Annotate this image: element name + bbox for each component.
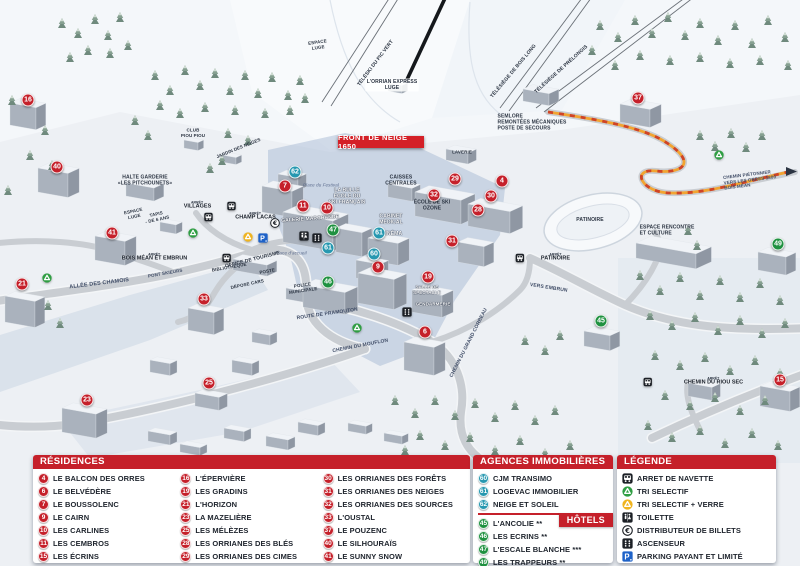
marker-badge: 23 — [180, 512, 191, 523]
legend-item-label: LE POUZENC — [338, 526, 387, 535]
map-marker-7: 7 — [279, 180, 292, 193]
marker-badge: 33 — [323, 512, 334, 523]
residences-column-1: 4 LE BALCON DES ORRES 6 LE BELVÉDÈRE 7 L… — [38, 472, 180, 563]
marker-badge: 6 — [38, 486, 49, 497]
legend-item-label: LES CARLINES — [53, 526, 109, 535]
legend-item-label: LOGEVAC IMMOBILIER — [493, 487, 578, 496]
marker-badge: 62 — [478, 499, 489, 510]
marker-badge: 49 — [478, 557, 489, 566]
legend-item-label: L'ESCALE BLANCHE *** — [493, 545, 581, 554]
bus-icon — [622, 473, 633, 484]
legende-panel-title: LÉGENDE — [617, 455, 776, 469]
legend-item-label: PARKING PAYANT ET LIMITÉ — [637, 552, 743, 561]
map-marker-16: 16 — [22, 94, 35, 107]
map-marker-60: 60 — [368, 248, 381, 261]
map-marker-11: 11 — [297, 200, 310, 213]
legend-item-label: LE SUNNY SNOW — [338, 552, 403, 561]
map-marker-62: 62 — [289, 166, 302, 179]
legende-panel: LÉGENDE ARRET DE NAVETTE TRI SELECTIF TR… — [617, 455, 776, 563]
elevator-icon — [312, 233, 322, 243]
recycle-green-icon — [352, 323, 362, 333]
legend-item: 7 LE BOUSSOLENC — [38, 498, 180, 511]
legend-item: 62 NEIGE ET SOLEIL — [478, 498, 608, 511]
legend-item-label: LE BALCON DES ORRES — [53, 474, 145, 483]
legend-item: € DISTRIBUTEUR DE BILLETS — [622, 524, 771, 537]
legend-item-label: LES ORRIANES DES CIMES — [195, 552, 297, 561]
residences-column-2: 16 L'ÉPERVIÈRE 19 LES GRADINS 21 L'HORIZ… — [180, 472, 322, 563]
legend-item: 31 LES ORRIANES DES NEIGES — [323, 485, 465, 498]
legend-item-label: LES ORRIANES DES NEIGES — [338, 487, 445, 496]
marker-badge: 16 — [180, 473, 191, 484]
legend-item-label: LES CEMBROS — [53, 539, 109, 548]
legend-item: 21 L'HORIZON — [180, 498, 322, 511]
marker-badge: 61 — [478, 486, 489, 497]
marker-badge: 21 — [180, 499, 191, 510]
map-marker-21: 21 — [16, 278, 29, 291]
bus-stop-label: CHAMP LACAS — [235, 215, 276, 221]
legend-item: 15 LES ÉCRINS — [38, 550, 180, 563]
marker-badge: 47 — [478, 544, 489, 555]
hotels-section-title: HÔTELS — [559, 513, 613, 527]
marker-badge: 31 — [323, 486, 334, 497]
map-marker-6: 6 — [419, 326, 432, 339]
legend-item-label: LA MAZELIÈRE — [195, 513, 251, 522]
recycle-green-icon — [188, 228, 198, 238]
legende-list: ARRET DE NAVETTE TRI SELECTIF TRI SELECT… — [617, 469, 776, 563]
legend-item-label: LES GRADINS — [195, 487, 247, 496]
elevator-icon — [622, 538, 633, 549]
marker-badge: 28 — [180, 538, 191, 549]
legend-item-label: TRI SELECTIF — [637, 487, 689, 496]
legend-item-label: LE CAIRN — [53, 513, 89, 522]
recycle-green-icon — [714, 150, 724, 160]
map-marker-15: 15 — [774, 374, 787, 387]
bus-stop-patinoire: ARRÊT PATINOIRE — [515, 250, 584, 267]
map-marker-41: 41 — [106, 227, 119, 240]
residences-panel: RÉSIDENCES 4 LE BALCON DES ORRES 6 LE BE… — [33, 455, 470, 563]
legend-item-label: L'ANCOLIE ** — [493, 519, 542, 528]
legend-item-label: LES ORRIANES DES SOURCES — [338, 500, 453, 509]
marker-badge: 60 — [478, 473, 489, 484]
bus-stop-label: PATINOIRE — [541, 256, 570, 262]
recycle-green-icon — [622, 486, 633, 497]
legend-item: 41 LE SUNNY SNOW — [323, 550, 465, 563]
bus-icon — [643, 378, 652, 387]
legend-item-label: ASCENSEUR — [637, 539, 685, 548]
marker-badge: 7 — [38, 499, 49, 510]
marker-badge: 25 — [180, 525, 191, 536]
parking-icon: P — [622, 551, 633, 562]
marker-badge: 40 — [323, 538, 334, 549]
legend-item-label: LES ORRIANES DES FORÊTS — [338, 474, 447, 483]
legend-item: ARRET DE NAVETTE — [622, 472, 771, 485]
legend-item: 61 LOGEVAC IMMOBILIER — [478, 485, 608, 498]
legend-item: 28 LES ORRIANES DES BLÉS — [180, 537, 322, 550]
residences-column-3: 30 LES ORRIANES DES FORÊTS 31 LES ORRIAN… — [323, 472, 465, 563]
map-marker-40: 40 — [51, 161, 64, 174]
bus-stop-label: BOIS MÉAN ET EMBRUN — [122, 256, 187, 262]
legend-item-label: LES ÉCRINS — [53, 552, 99, 561]
legend-item: 46 LES ECRINS ** — [478, 530, 608, 543]
legend-item: 11 LES CEMBROS — [38, 537, 180, 550]
legend-item-label: TOILETTE — [637, 513, 674, 522]
map-marker-49: 49 — [772, 238, 785, 251]
svg-text:P: P — [624, 552, 629, 561]
legend-item-label: DISTRIBUTEUR DE BILLETS — [637, 526, 741, 535]
legend-item: 6 LE BELVÉDÈRE — [38, 485, 180, 498]
hotels-section: HÔTELS 45 L'ANCOLIE ** 46 LES ECRINS ** … — [478, 513, 608, 566]
legend-item: 16 L'ÉPERVIÈRE — [180, 472, 322, 485]
map-marker-25: 25 — [203, 377, 216, 390]
marker-badge: 30 — [323, 473, 334, 484]
agences-hotels-panel: AGENCES IMMOBILIÈRES 60 CJM TRANSIMO 61 … — [473, 455, 613, 563]
legend-item-label: ARRET DE NAVETTE — [637, 474, 713, 483]
legend-item: TRI SELECTIF — [622, 485, 771, 498]
map-marker-46: 46 — [322, 276, 335, 289]
marker-badge: 19 — [180, 486, 191, 497]
svg-text:€: € — [624, 527, 630, 535]
marker-badge: 41 — [323, 551, 334, 562]
recycle-yellow-icon — [622, 499, 633, 510]
legend-item-label: L'OUSTAL — [338, 513, 375, 522]
bus-stop-label: CHEMIN DU RIOU SEC — [684, 380, 743, 386]
agences-panel-title: AGENCES IMMOBILIÈRES — [473, 455, 613, 469]
map-marker-32: 32 — [428, 189, 441, 202]
marker-badge: 29 — [180, 551, 191, 562]
marker-badge: 15 — [38, 551, 49, 562]
map-marker-47: 47 — [327, 224, 340, 237]
legend-item: 9 LE CAIRN — [38, 511, 180, 524]
map-marker-28: 28 — [472, 204, 485, 217]
legend-item: 47 L'ESCALE BLANCHE *** — [478, 543, 608, 556]
legend-item-label: LES ECRINS ** — [493, 532, 547, 541]
map-marker-23: 23 — [81, 394, 94, 407]
legend-item: ASCENSEUR — [622, 537, 771, 550]
legend-item: 23 LA MAZELIÈRE — [180, 511, 322, 524]
marker-badge: 32 — [323, 499, 334, 510]
legend-item-label: LES MÉLÈZES — [195, 526, 248, 535]
agences-list: 60 CJM TRANSIMO 61 LOGEVAC IMMOBILIER 62… — [478, 472, 608, 511]
residences-panel-title: RÉSIDENCES — [33, 455, 470, 469]
legend-item-label: CJM TRANSIMO — [493, 474, 552, 483]
parking-icon: P — [258, 233, 268, 243]
map-marker-30: 30 — [485, 190, 498, 203]
legend-item: 49 LES TRAPPEURS ** — [478, 556, 608, 566]
bus-stop-champ-lacas: ARRÊT CHAMP LACAS — [204, 209, 296, 226]
bus-stop-bois-m-an-et-embrun: ARRÊT BOIS MÉAN ET EMBRUN — [89, 250, 231, 267]
front-de-neige-banner: FRONT DE NEIGE 1650 — [338, 136, 424, 148]
map-marker-9: 9 — [372, 261, 385, 274]
legend-item: 37 LE POUZENC — [323, 524, 465, 537]
legend-item: 10 LES CARLINES — [38, 524, 180, 537]
legend-item: 25 LES MÉLÈZES — [180, 524, 322, 537]
toilet-icon — [622, 512, 633, 523]
legend-item: 40 LE SILHOURAÏS — [323, 537, 465, 550]
bus-stop-chemin-du-riou-sec: ARRÊT CHEMIN DU RIOU SEC — [643, 374, 773, 391]
legend-item-label: LES TRAPPEURS ** — [493, 558, 565, 566]
map-marker-61: 61 — [322, 242, 335, 255]
legend-item: 30 LES ORRIANES DES FORÊTS — [323, 472, 465, 485]
map-marker-29: 29 — [449, 173, 462, 186]
legend-item-label: LE BELVÉDÈRE — [53, 487, 111, 496]
legend-item-label: LES ORRIANES DES BLÉS — [195, 539, 293, 548]
map-marker-45: 45 — [595, 315, 608, 328]
bus-icon — [204, 213, 213, 222]
marker-badge: 4 — [38, 473, 49, 484]
legend-item-label: TRI SELECTIF + VERRE — [637, 500, 724, 509]
marker-badge: 46 — [478, 531, 489, 542]
elevator-icon — [402, 307, 412, 317]
legend-item: 19 LES GRADINS — [180, 485, 322, 498]
euro-icon: € — [622, 525, 633, 536]
recycle-green-icon — [42, 273, 52, 283]
legend-item-label: LE BOUSSOLENC — [53, 500, 119, 509]
marker-badge: 10 — [38, 525, 49, 536]
marker-badge: 11 — [38, 538, 49, 549]
legend-item: TRI SELECTIF + VERRE — [622, 498, 771, 511]
legend-item-label: LE SILHOURAÏS — [338, 539, 397, 548]
legend-item: 32 LES ORRIANES DES SOURCES — [323, 498, 465, 511]
legend-item-label: L'ÉPERVIÈRE — [195, 474, 245, 483]
map-marker-61: 61 — [373, 227, 386, 240]
legend-item-label: L'HORIZON — [195, 500, 237, 509]
legend-item: 4 LE BALCON DES ORRES — [38, 472, 180, 485]
legend-item: 60 CJM TRANSIMO — [478, 472, 608, 485]
recycle-yellow-icon — [243, 232, 253, 242]
legend-item: P PARKING PAYANT ET LIMITÉ — [622, 550, 771, 563]
map-marker-4: 4 — [496, 175, 509, 188]
legend-item: TOILETTE — [622, 511, 771, 524]
toilet-icon — [299, 231, 309, 241]
legend-item: 33 L'OUSTAL — [323, 511, 465, 524]
legend-item: 29 LES ORRIANES DES CIMES — [180, 550, 322, 563]
marker-badge: 45 — [478, 518, 489, 529]
map-marker-31: 31 — [446, 235, 459, 248]
map-marker-33: 33 — [198, 293, 211, 306]
marker-badge: 9 — [38, 512, 49, 523]
bus-icon — [222, 254, 231, 263]
svg-text:P: P — [260, 235, 265, 243]
map-marker-37: 37 — [632, 92, 645, 105]
map-marker-10: 10 — [321, 202, 334, 215]
legend-item-label: NEIGE ET SOLEIL — [493, 500, 559, 509]
map-marker-19: 19 — [422, 271, 435, 284]
marker-badge: 37 — [323, 525, 334, 536]
bus-icon — [515, 254, 524, 263]
resort-map: FRONT DE NEIGE 1650 TÉLÉSKI DU PIC VERTL… — [0, 0, 800, 566]
